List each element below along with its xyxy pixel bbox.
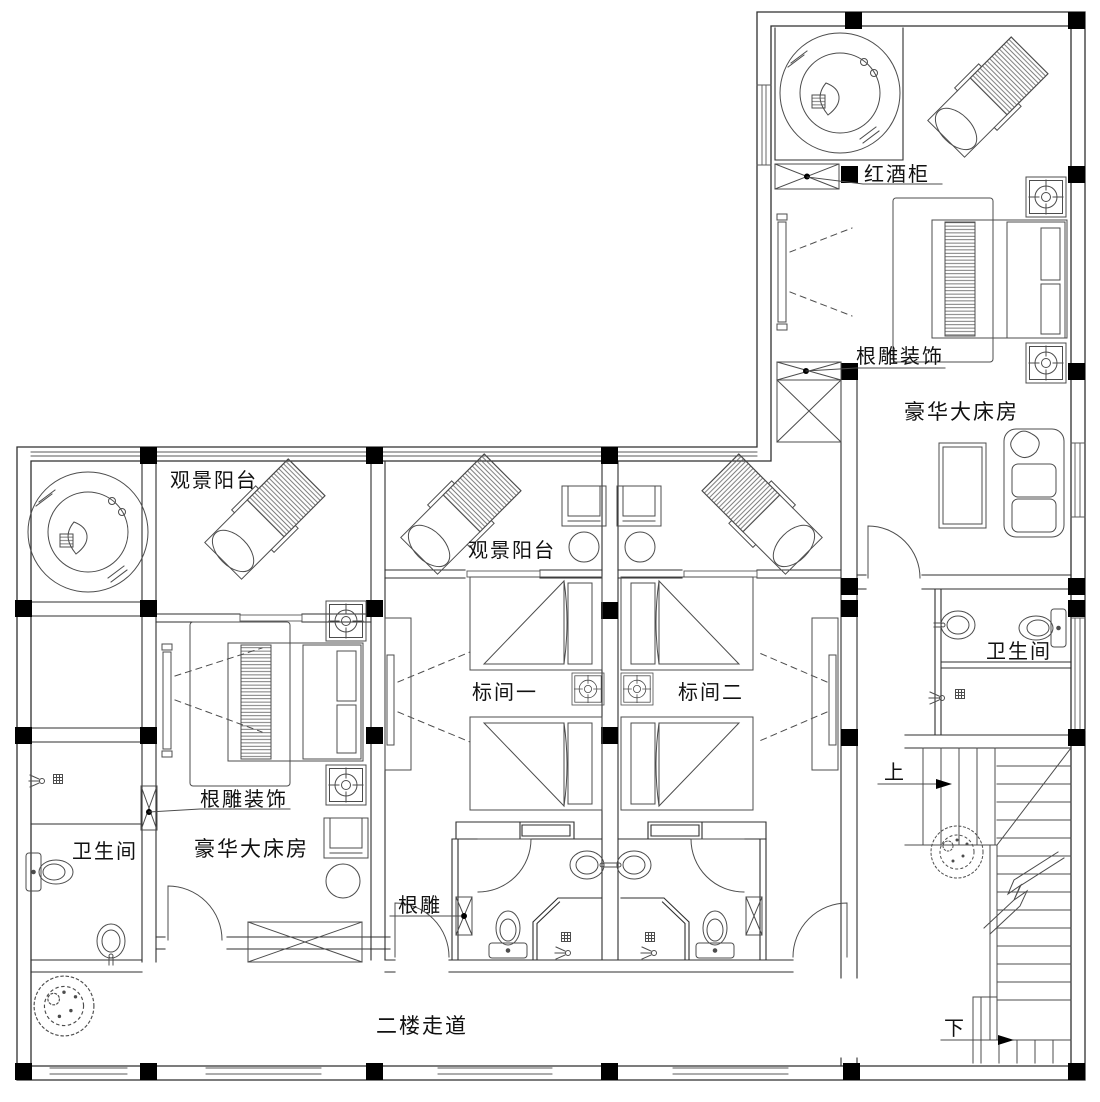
label-bathroom-right: 卫生间 (986, 640, 1052, 663)
xbox-root-carving-left-wall (141, 786, 157, 830)
sliding-door-left (240, 615, 302, 621)
stair-flight-bottom (981, 1040, 1071, 1063)
sliding-door-std2 (684, 571, 757, 577)
label-balcony-left: 观景阳台 (170, 469, 258, 492)
shower-head-bath2 (641, 947, 657, 959)
stair-landing-wall (973, 997, 997, 1063)
door-left-bedroom (168, 886, 222, 940)
door-std2-entry (793, 903, 847, 957)
sofa-wing (1004, 429, 1064, 537)
king-bed-left (190, 622, 363, 786)
wing-east-window-1 (1071, 443, 1085, 517)
label-wine-cabinet: 红酒柜 (864, 163, 930, 186)
floor-plan-canvas: 红酒柜 根雕装饰 豪华大床房 观景阳台 观景阳台 根雕装饰 豪华大床房 标间一 … (0, 0, 1100, 1102)
sink-wing-bath (934, 611, 975, 639)
label-stairs-up: 上 (884, 761, 906, 784)
sink-left-bath (97, 924, 125, 965)
wing-east-window-2 (1071, 618, 1085, 730)
nightstand-left-bottom (326, 765, 366, 805)
wing-west-window (757, 85, 771, 165)
twin-bed-2b (621, 717, 753, 810)
left-room-chair (324, 818, 368, 858)
twin-bed-2a (621, 577, 753, 670)
nightstand-std2 (621, 673, 653, 705)
twin-bed-1b (470, 717, 602, 810)
south-windows (50, 1068, 788, 1074)
tv-std1 (385, 618, 470, 770)
stair-flight-top (905, 748, 997, 845)
leader-root-decor-wing (806, 368, 945, 371)
label-balcony-center: 观景阳台 (468, 539, 556, 562)
plant-southwest (34, 976, 94, 1036)
balcony-chair-1 (562, 486, 606, 526)
nightstand-left-top (326, 601, 366, 641)
toilet-left-bath (26, 853, 73, 891)
coffee-table-wing (939, 443, 986, 528)
label-root-decor-upper: 根雕装饰 (856, 345, 944, 368)
sliding-door-std1 (467, 571, 540, 577)
plant-stairs (931, 826, 983, 878)
lounge-chair-wing (924, 34, 1051, 161)
doors (168, 526, 920, 957)
stair-flight-right (997, 766, 1071, 1000)
balcony-window-band (31, 452, 757, 456)
toilet-bath1 (489, 911, 527, 958)
label-stairs-down: 下 (944, 1018, 966, 1040)
left-room-table (326, 864, 360, 898)
tv-std2 (757, 618, 838, 770)
door-wing-suite (868, 526, 920, 578)
labels: 红酒柜 根雕装饰 豪华大床房 观景阳台 观景阳台 根雕装饰 豪华大床房 标间一 … (72, 163, 1052, 1040)
drain-bath1 (562, 933, 571, 942)
balcony-chair-2 (617, 486, 661, 526)
stair-winder-diagonal (997, 748, 1071, 845)
label-deluxe-room-upper: 豪华大床房 (904, 400, 1019, 424)
label-std-room-1: 标间一 (472, 681, 538, 704)
toilet-bath2 (696, 911, 734, 958)
floor-plan-svg: 红酒柜 根雕装饰 豪华大床房 观景阳台 观景阳台 根雕装饰 豪华大床房 标间一 … (0, 0, 1100, 1102)
xbox-large-wing (777, 380, 841, 442)
door-bath1 (478, 839, 531, 892)
windows (31, 85, 1085, 1074)
balcony-table-1 (569, 532, 599, 562)
twin-bed-1a (470, 577, 602, 670)
round-tub-left (28, 472, 148, 592)
xbox-cabinet-corridor (248, 922, 362, 962)
shower-head-wing (929, 692, 945, 704)
label-std-room-2: 标间二 (678, 681, 744, 704)
label-root-decor-left: 根雕装饰 (200, 788, 288, 811)
door-bath2 (691, 839, 744, 892)
label-deluxe-room-left: 豪华大床房 (194, 837, 309, 861)
nightstand-wing-bottom (1026, 343, 1066, 383)
shower-head-bath1 (555, 947, 571, 959)
sink-bath2 (610, 851, 651, 879)
nightstand-std1 (572, 673, 604, 705)
round-tub-wing (780, 33, 900, 153)
lounge-chair-std2-balcony (699, 451, 826, 578)
nightstand-wing-top (1026, 177, 1066, 217)
king-bed-wing (893, 198, 1067, 362)
label-bathroom-left: 卫生间 (72, 840, 138, 863)
drain-left (54, 775, 63, 784)
stair-break-line (984, 852, 1064, 934)
tv-wing-room (777, 214, 852, 330)
label-root-carving: 根雕 (398, 894, 442, 917)
label-corridor: 二楼走道 (376, 1014, 468, 1038)
sink-bath1 (570, 851, 611, 879)
balcony-table-2 (625, 532, 655, 562)
drain-wing (956, 690, 965, 699)
stair-rail (990, 845, 997, 1040)
staircase (878, 748, 1071, 1063)
drain-bath2 (646, 933, 655, 942)
